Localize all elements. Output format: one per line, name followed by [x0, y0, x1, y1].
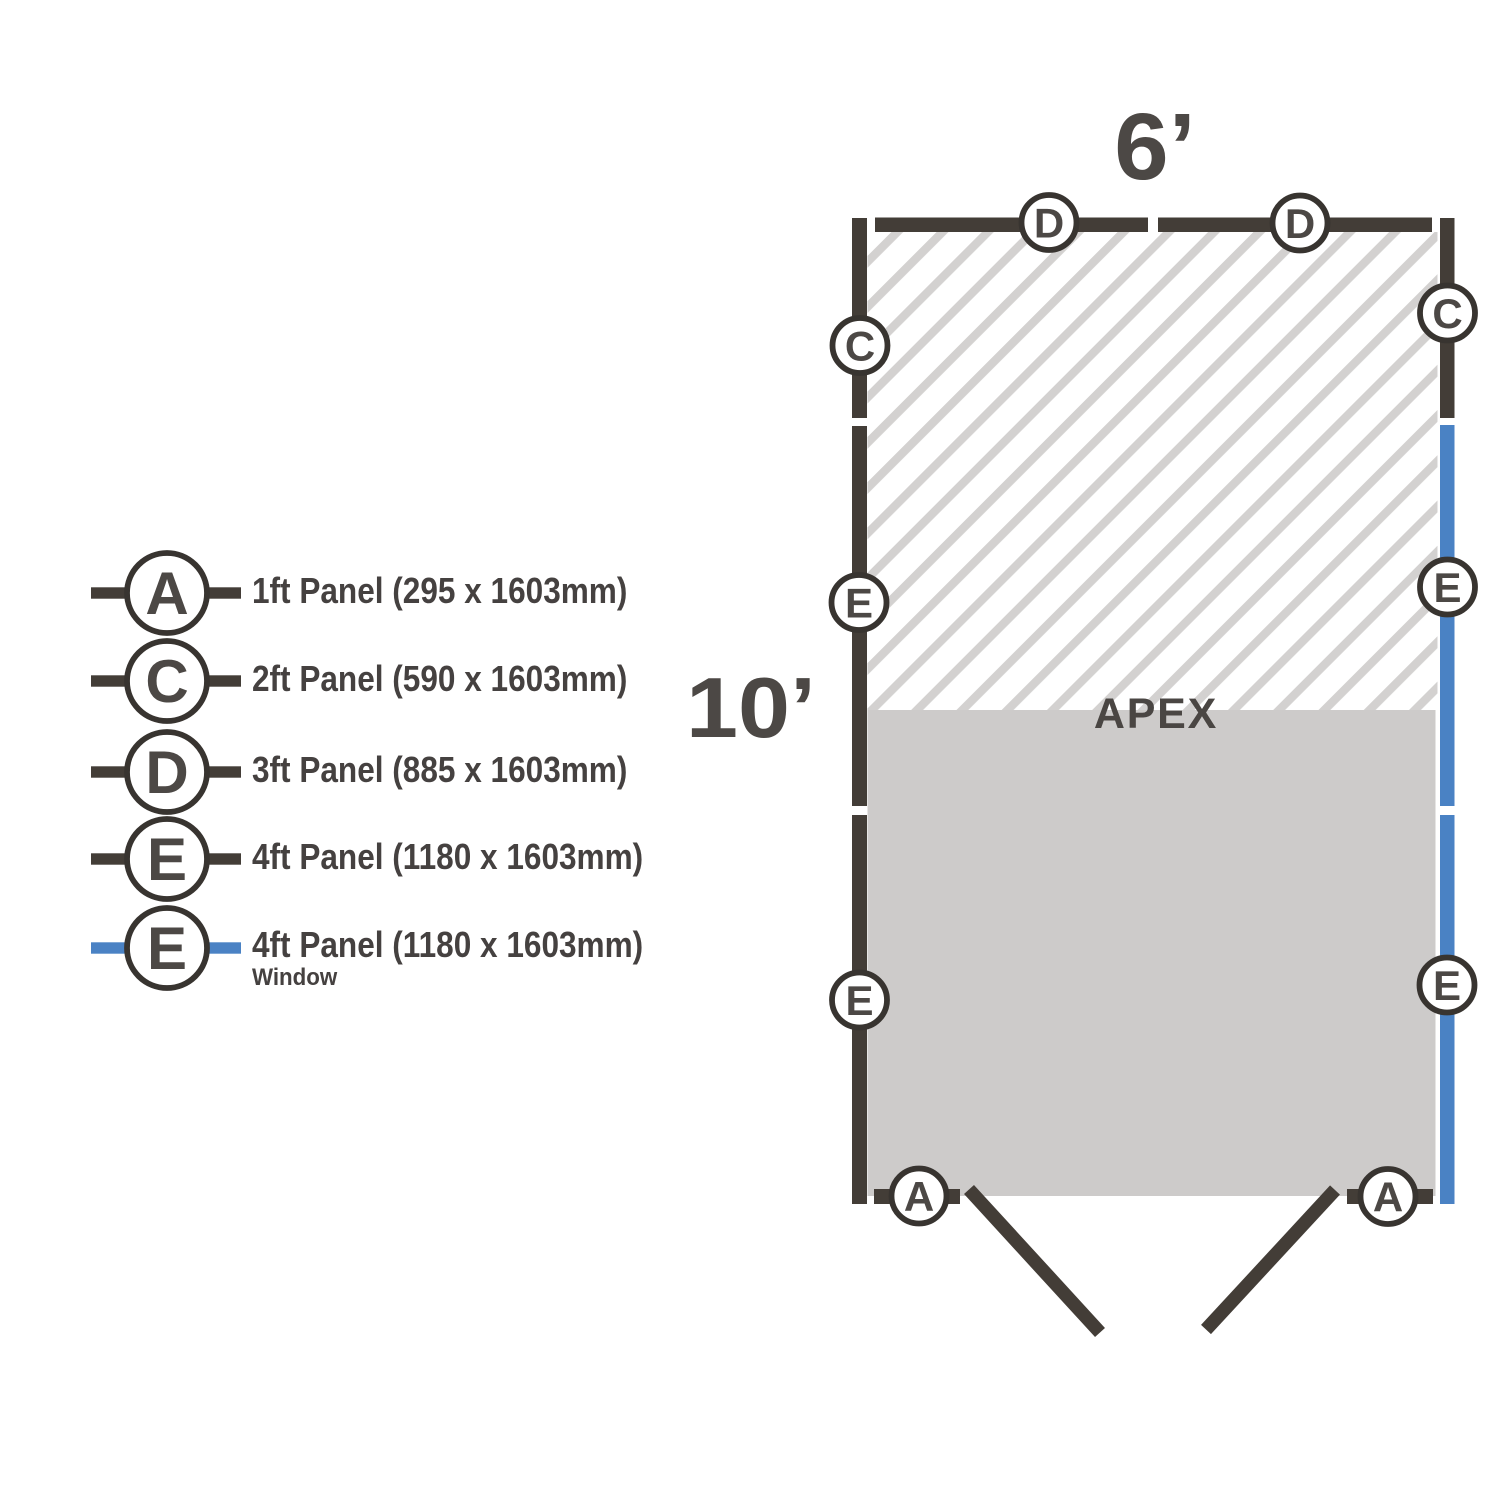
- svg-text:APEX: APEX: [1094, 690, 1218, 738]
- svg-text:C: C: [845, 323, 875, 370]
- svg-text:C: C: [145, 648, 188, 715]
- svg-text:4ft Panel (1180 x 1603mm): 4ft Panel (1180 x 1603mm): [252, 837, 643, 877]
- svg-text:1ft Panel (295 x 1603mm): 1ft Panel (295 x 1603mm): [252, 571, 627, 611]
- svg-text:10’: 10’: [686, 660, 816, 755]
- svg-text:3ft Panel (885 x 1603mm): 3ft Panel (885 x 1603mm): [252, 750, 627, 790]
- svg-text:2ft Panel (590 x 1603mm): 2ft Panel (590 x 1603mm): [252, 659, 627, 699]
- svg-text:Window: Window: [252, 963, 338, 990]
- svg-text:E: E: [1433, 962, 1461, 1009]
- svg-text:A: A: [904, 1173, 934, 1220]
- svg-text:E: E: [845, 977, 873, 1024]
- svg-text:E: E: [147, 915, 187, 982]
- svg-text:E: E: [1433, 564, 1461, 611]
- svg-text:D: D: [145, 739, 188, 806]
- svg-text:D: D: [1285, 200, 1315, 247]
- svg-text:A: A: [145, 560, 188, 627]
- svg-text:C: C: [1432, 290, 1462, 337]
- svg-text:E: E: [147, 826, 187, 893]
- svg-text:E: E: [845, 580, 873, 627]
- svg-text:D: D: [1034, 200, 1064, 247]
- svg-text:4ft Panel (1180 x 1603mm): 4ft Panel (1180 x 1603mm): [252, 925, 643, 965]
- svg-text:A: A: [1373, 1174, 1403, 1221]
- svg-text:6’: 6’: [1114, 94, 1196, 199]
